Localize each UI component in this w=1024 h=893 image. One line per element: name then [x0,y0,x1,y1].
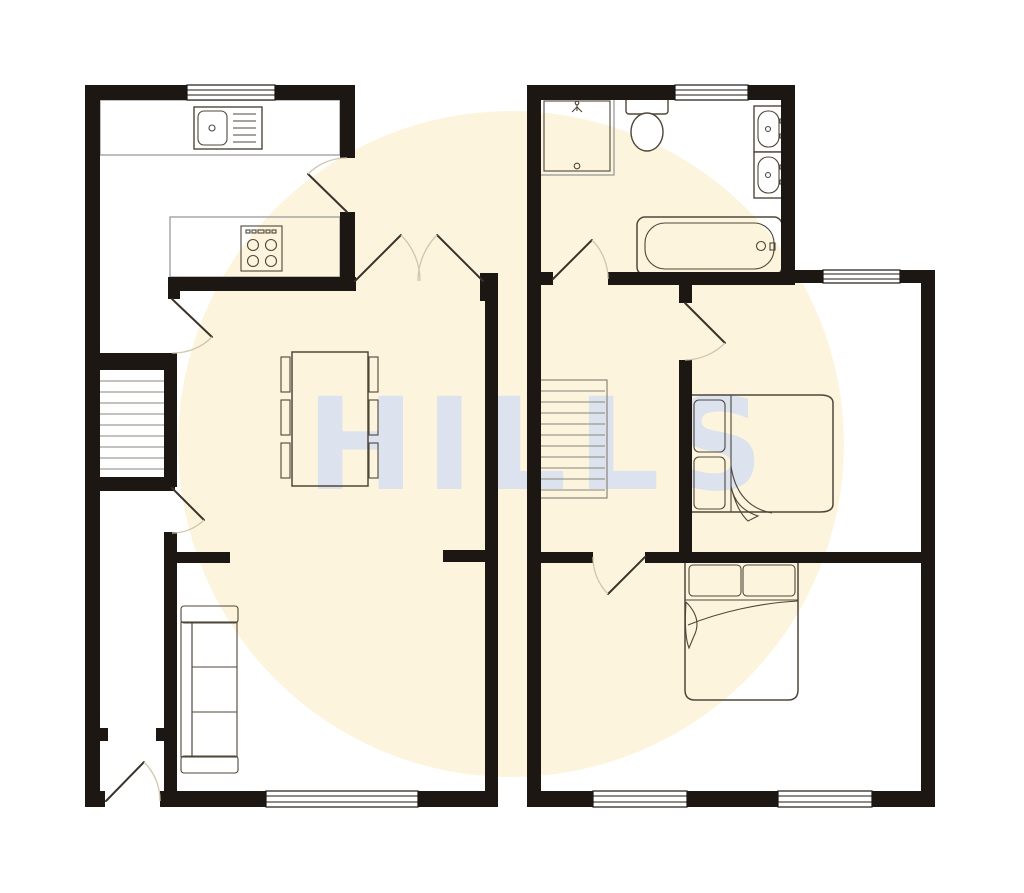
kitchen-sink-icon [194,107,262,149]
wall [85,477,175,491]
wall [85,353,175,370]
wall [608,272,781,285]
wall [687,791,778,807]
wall [164,353,177,487]
wall [781,270,823,283]
wall [164,532,177,803]
wall [872,791,935,807]
wall [340,212,355,284]
staircase-ground [100,381,164,469]
wall [527,272,553,285]
wall [340,85,355,158]
wall [443,550,487,562]
sofa [181,606,238,773]
bedroom2-window-right [778,791,872,807]
kitchen-window [187,85,275,100]
wall [527,552,593,563]
wall [85,85,187,100]
wall [168,277,356,291]
wall [100,728,108,741]
wall [679,360,692,552]
wall [645,552,935,563]
wall [85,791,105,807]
bathroom-window [675,85,748,100]
wall [480,273,498,301]
bedroom2-window-left [593,791,687,807]
wall [168,277,180,299]
wall [527,791,593,807]
wall [164,552,230,563]
entrance-door [106,762,160,801]
wall [85,85,100,807]
floorplan-page: HILLS [0,0,1024,893]
wall [781,85,795,285]
wall [527,85,541,807]
wall [485,273,498,805]
wall [527,85,675,100]
wall [156,728,164,741]
wash-basin-icon [754,106,784,152]
bedroom1-window [823,270,900,283]
wash-basin-icon [754,152,784,198]
floorplan-drawing: HILLS [0,0,1024,893]
wall [418,791,498,807]
wall [679,285,692,303]
wall [160,791,266,807]
wall [921,270,935,807]
living-room-window [266,791,418,807]
